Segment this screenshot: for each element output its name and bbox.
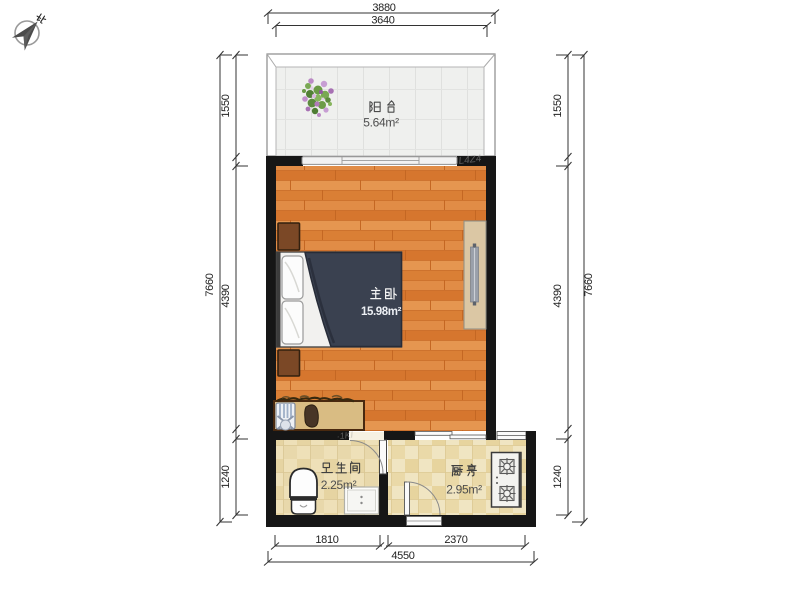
svg-text:1240: 1240 (220, 465, 232, 488)
svg-text:1550: 1550 (220, 94, 232, 117)
svg-text:7660: 7660 (204, 273, 216, 296)
svg-text:5.64m²: 5.64m² (363, 116, 399, 130)
svg-text:2.95m²: 2.95m² (446, 483, 482, 497)
svg-text:4390: 4390 (220, 284, 232, 307)
svg-text:1550: 1550 (552, 94, 564, 117)
svg-text:2.25m²: 2.25m² (321, 478, 357, 492)
svg-text:7660: 7660 (583, 273, 595, 296)
svg-text:2370: 2370 (444, 534, 467, 546)
svg-text:4390: 4390 (552, 284, 564, 307)
svg-text:3880: 3880 (372, 2, 395, 14)
svg-text:1240: 1240 (552, 465, 564, 488)
svg-text:1810: 1810 (315, 534, 338, 546)
svg-text:4550: 4550 (391, 550, 414, 562)
svg-text:15.98m²: 15.98m² (361, 306, 402, 318)
svg-text:·1KI: ·1KI (336, 429, 354, 441)
svg-text:3640: 3640 (371, 15, 394, 27)
